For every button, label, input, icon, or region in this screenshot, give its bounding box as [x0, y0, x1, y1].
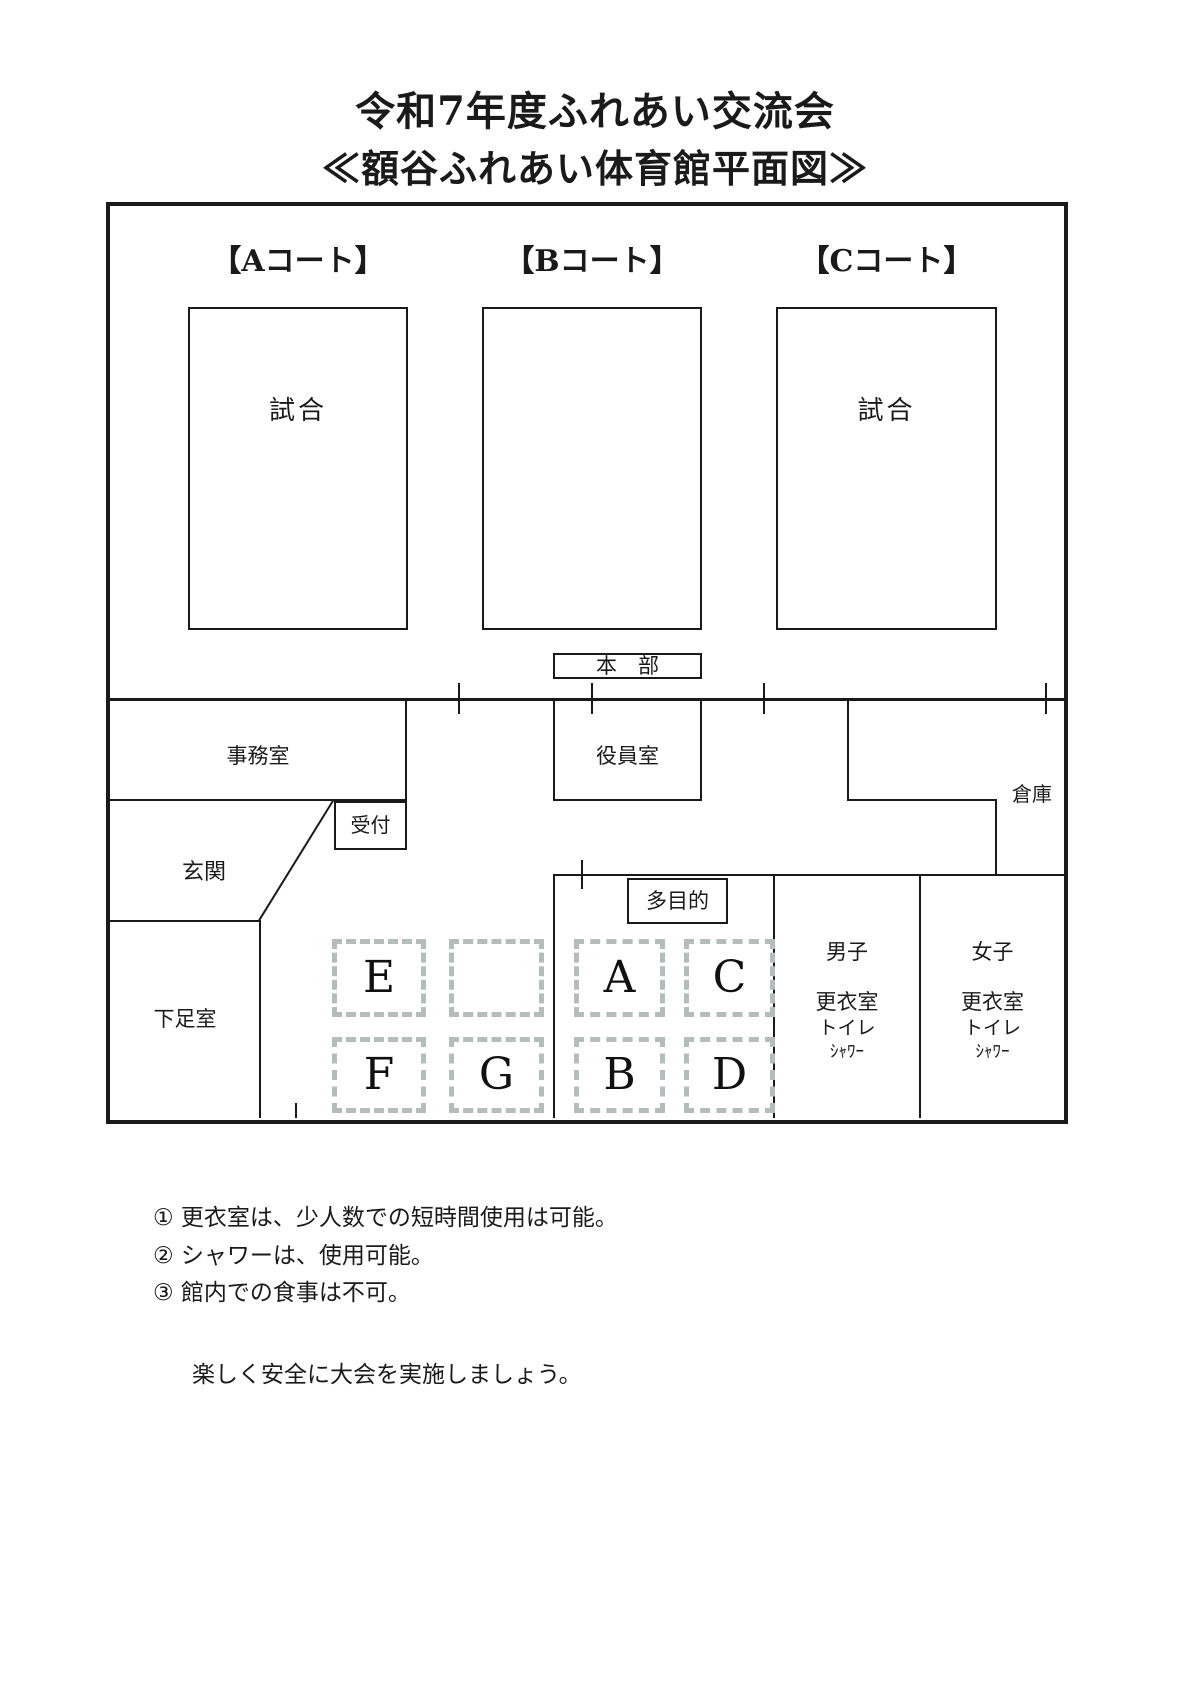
storage-west-wall — [847, 700, 849, 801]
page-title: 令和7年度ふれあい交流会 — [0, 90, 1190, 134]
bottom-door-tick — [295, 1103, 297, 1118]
court-b-outline — [482, 307, 702, 630]
door-tick-2 — [591, 683, 593, 714]
door-tick-3 — [763, 683, 765, 714]
mens-room-line-2: トイレ — [775, 1013, 919, 1040]
court-a-outline — [188, 307, 408, 630]
court-c-match-label: 試合 — [776, 390, 997, 427]
court-c-label: 【Cコート】 — [776, 236, 997, 280]
officers-room-label: 役員室 — [553, 740, 702, 770]
shoe-room-north-wall — [110, 920, 261, 922]
shoe-room-east-wall — [259, 920, 261, 1118]
note-1: ① 更衣室は、少人数での短時間使用は可能。 — [153, 1200, 618, 1238]
mens-room-line-3: ｼｬﾜｰ — [775, 1037, 919, 1062]
zone-box-e: E — [332, 939, 426, 1017]
zone-box-c: C — [684, 939, 775, 1017]
zone-box-d: D — [684, 1037, 775, 1113]
notes-list: ① 更衣室は、少人数での短時間使用は可能。 ② シャワーは、使用可能。 ③ 館内… — [153, 1200, 618, 1313]
zone-box-b: B — [574, 1037, 665, 1113]
womens-room-line-3: ｼｬﾜｰ — [921, 1037, 1064, 1062]
document-page: 令和7年度ふれあい交流会 ≪額谷ふれあい体育館平面図≫ 【Aコート】 【Bコート… — [0, 0, 1200, 1697]
gym-south-wall — [110, 698, 1064, 701]
rooms-north-wall — [553, 874, 1064, 876]
officers-room-south-wall — [553, 799, 702, 801]
storage-step-wall-h — [847, 799, 997, 801]
multipurpose-box: 多目的 — [627, 878, 728, 924]
multipurpose-door-tick — [581, 860, 583, 889]
zone-box-f: F — [332, 1037, 426, 1113]
page-subtitle: ≪額谷ふれあい体育館平面図≫ — [0, 148, 1190, 190]
womens-room-line-1: 更衣室 — [921, 986, 1064, 1016]
zone-box-empty — [449, 939, 544, 1017]
zone-box-a: A — [574, 939, 665, 1017]
mens-room-label: 男子 — [775, 936, 919, 966]
womens-room-line-2: トイレ — [921, 1013, 1064, 1040]
womens-room-label: 女子 — [921, 936, 1064, 966]
shoe-room-label: 下足室 — [115, 1003, 255, 1033]
zone-box-g: G — [449, 1037, 544, 1113]
door-tick-1 — [458, 683, 460, 714]
mens-room-line-1: 更衣室 — [775, 986, 919, 1016]
office-label: 事務室 — [110, 740, 406, 770]
court-b-label: 【Bコート】 — [482, 236, 702, 280]
zone-room-west-wall — [553, 874, 555, 1118]
reception-box: 受付 — [334, 801, 407, 850]
headquarters-box: 本 部 — [553, 653, 702, 679]
storage-label: 倉庫 — [999, 778, 1065, 807]
court-a-label: 【Aコート】 — [188, 236, 408, 280]
court-a-match-label: 試合 — [188, 390, 408, 427]
closing-message: 楽しく安全に大会を実施しましょう。 — [192, 1355, 582, 1389]
storage-step-wall-v — [995, 799, 997, 876]
court-c-outline — [776, 307, 997, 630]
note-2: ② シャワーは、使用可能。 — [153, 1238, 618, 1276]
door-tick-4 — [1045, 683, 1047, 714]
entrance-label: 玄関 — [145, 854, 263, 886]
note-3: ③ 館内での食事は不可。 — [153, 1275, 618, 1313]
